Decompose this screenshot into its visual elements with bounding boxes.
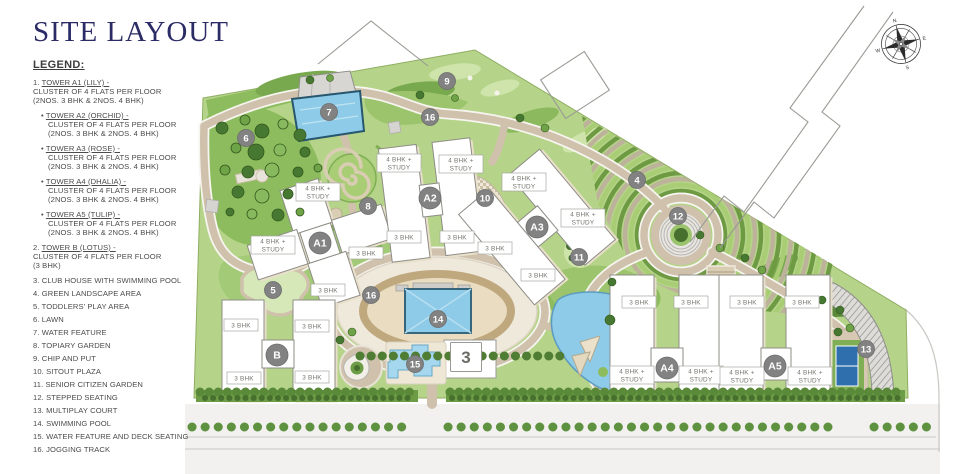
- legend-item: • TOWER A4 (DHALIA) -CLUSTER OF 4 FLATS …: [33, 177, 189, 204]
- legend-item: 14. SWIMMING POOL: [33, 419, 189, 428]
- legend-item: 15. WATER FEATURE AND DECK SEATING: [33, 432, 189, 441]
- map-marker-7: 7: [321, 104, 338, 121]
- unit-label: 3 BHK: [349, 247, 383, 259]
- svg-text:N: N: [892, 18, 897, 25]
- map-marker-12: 12: [670, 208, 687, 225]
- map-marker-16: 16: [422, 109, 439, 126]
- unit-label: 4 BHK +STUDY: [788, 367, 832, 385]
- compass-rose-icon: NESW: [869, 12, 934, 78]
- svg-text:A5: A5: [768, 360, 782, 372]
- svg-text:E: E: [922, 35, 927, 42]
- svg-text:5: 5: [270, 285, 276, 296]
- svg-text:4 BHK +: 4 BHK +: [260, 239, 285, 246]
- svg-text:STUDY: STUDY: [450, 166, 473, 173]
- map-marker-3: 3: [451, 343, 482, 372]
- map-marker-9: 9: [439, 73, 456, 90]
- svg-text:3 BHK: 3 BHK: [302, 323, 322, 330]
- map-marker-6: 6: [238, 130, 255, 147]
- unit-label: 3 BHK: [478, 242, 512, 254]
- svg-text:3: 3: [461, 348, 470, 367]
- svg-text:4: 4: [634, 175, 640, 186]
- svg-text:STUDY: STUDY: [262, 247, 285, 254]
- unit-label: 4 BHK +STUDY: [610, 366, 654, 384]
- map-marker-15: 15: [407, 356, 424, 373]
- svg-text:A4: A4: [660, 362, 674, 374]
- svg-text:3 BHK: 3 BHK: [318, 287, 338, 294]
- legend-list: 1. TOWER A1 (LILY) -CLUSTER OF 4 FLATS P…: [33, 78, 189, 454]
- svg-text:W: W: [875, 48, 881, 55]
- svg-text:16: 16: [425, 112, 436, 123]
- legend-item: 11. SENIOR CITIZEN GARDEN: [33, 380, 189, 389]
- svg-text:4 BHK +: 4 BHK +: [797, 370, 822, 377]
- legend-item: 7. WATER FEATURE: [33, 328, 189, 337]
- svg-text:3 BHK: 3 BHK: [528, 272, 548, 279]
- unit-label: 3 BHK: [521, 269, 555, 281]
- unit-label: 4 BHK +STUDY: [679, 366, 723, 384]
- unit-label: 3 BHK: [311, 284, 345, 296]
- legend-item: • TOWER A3 (ROSE) -CLUSTER OF 4 FLATS PE…: [33, 144, 189, 171]
- legend-item: 16. JOGGING TRACK: [33, 445, 189, 454]
- legend-item: 12. STEPPED SEATING: [33, 393, 189, 402]
- unit-label: 4 BHK +STUDY: [720, 367, 764, 385]
- svg-text:4 BHK +: 4 BHK +: [511, 176, 536, 183]
- svg-text:4 BHK +: 4 BHK +: [386, 157, 411, 164]
- svg-text:4 BHK +: 4 BHK +: [688, 369, 713, 376]
- unit-label: 3 BHK: [622, 296, 656, 308]
- svg-text:11: 11: [574, 252, 585, 263]
- unit-label: 3 BHK: [440, 231, 474, 243]
- unit-label: 3 BHK: [295, 371, 329, 383]
- map-marker-14: 14: [430, 311, 447, 328]
- svg-text:4 BHK +: 4 BHK +: [570, 212, 595, 219]
- svg-text:STUDY: STUDY: [307, 194, 330, 201]
- svg-text:14: 14: [433, 314, 444, 325]
- svg-text:3 BHK: 3 BHK: [792, 299, 812, 306]
- svg-text:A3: A3: [530, 221, 544, 233]
- svg-text:3 BHK: 3 BHK: [394, 234, 414, 241]
- svg-text:STUDY: STUDY: [731, 378, 754, 385]
- svg-text:STUDY: STUDY: [388, 165, 411, 172]
- svg-text:S: S: [905, 65, 910, 72]
- svg-text:3 BHK: 3 BHK: [737, 299, 757, 306]
- unit-label: 4 BHK +STUDY: [377, 154, 421, 172]
- svg-text:6: 6: [243, 133, 248, 144]
- svg-text:3 BHK: 3 BHK: [234, 375, 254, 382]
- unit-label: 3 BHK: [387, 231, 421, 243]
- legend-item: 13. MULTIPLAY COURT: [33, 406, 189, 415]
- unit-label: 3 BHK: [674, 296, 708, 308]
- map-marker-A5: A5: [764, 355, 786, 377]
- map-marker-10: 10: [477, 190, 494, 207]
- map-marker-13: 13: [858, 341, 875, 358]
- svg-text:STUDY: STUDY: [621, 377, 644, 384]
- svg-text:STUDY: STUDY: [513, 184, 536, 191]
- svg-text:3 BHK: 3 BHK: [485, 245, 505, 252]
- map-marker-A2: A2: [419, 187, 441, 209]
- legend-item: • TOWER A5 (TULIP) -CLUSTER OF 4 FLATS P…: [33, 210, 189, 237]
- legend-item: • TOWER A2 (ORCHID) -CLUSTER OF 4 FLATS …: [33, 111, 189, 138]
- svg-text:STUDY: STUDY: [799, 378, 822, 385]
- site-layout-page: NESW 4 BHK +STUDY4 BHK +STUDY4 BHK +STUD…: [0, 0, 967, 474]
- legend-item: 5. TODDLERS' PLAY AREA: [33, 302, 189, 311]
- svg-text:7: 7: [326, 107, 331, 118]
- svg-text:3 BHK: 3 BHK: [681, 299, 701, 306]
- legend-item: 10. SITOUT PLAZA: [33, 367, 189, 376]
- legend-heading: LEGEND:: [33, 59, 189, 71]
- unit-label: 4 BHK +STUDY: [502, 173, 546, 191]
- page-title: SITE LAYOUT: [33, 16, 189, 49]
- svg-text:3 BHK: 3 BHK: [356, 250, 376, 257]
- svg-text:4 BHK +: 4 BHK +: [729, 370, 754, 377]
- svg-text:4 BHK +: 4 BHK +: [305, 186, 330, 193]
- svg-text:15: 15: [410, 359, 421, 370]
- unit-label: 4 BHK +STUDY: [439, 155, 483, 173]
- unit-label: 3 BHK: [785, 296, 819, 308]
- map-marker-8: 8: [360, 198, 377, 215]
- unit-label: 3 BHK: [295, 320, 329, 332]
- unit-label: 4 BHK +STUDY: [561, 209, 605, 227]
- svg-text:4 BHK +: 4 BHK +: [448, 158, 473, 165]
- svg-text:3 BHK: 3 BHK: [447, 234, 467, 241]
- legend-item: 9. CHIP AND PUT: [33, 354, 189, 363]
- legend-item: 8. TOPIARY GARDEN: [33, 341, 189, 350]
- map-marker-4: 4: [629, 172, 646, 189]
- map-marker-11: 11: [571, 249, 588, 266]
- svg-text:3 BHK: 3 BHK: [231, 322, 251, 329]
- svg-text:B: B: [273, 349, 281, 361]
- legend-item: 4. GREEN LANDSCAPE AREA: [33, 289, 189, 298]
- svg-text:16: 16: [366, 290, 377, 301]
- unit-label: 3 BHK: [224, 319, 258, 331]
- legend-item: 3. CLUB HOUSE WITH SWIMMING POOL: [33, 276, 189, 285]
- map-marker-A1: A1: [309, 232, 331, 254]
- map-marker-16: 16: [363, 287, 380, 304]
- svg-text:A1: A1: [313, 237, 327, 249]
- legend-panel: SITE LAYOUT LEGEND: 1. TOWER A1 (LILY) -…: [33, 16, 189, 458]
- legend-item: 6. LAWN: [33, 315, 189, 324]
- unit-label: 4 BHK +STUDY: [296, 183, 340, 201]
- legend-item: 1. TOWER A1 (LILY) -CLUSTER OF 4 FLATS P…: [33, 78, 189, 105]
- map-marker-5: 5: [265, 282, 282, 299]
- svg-text:3 BHK: 3 BHK: [629, 299, 649, 306]
- unit-label: 4 BHK +STUDY: [251, 236, 295, 254]
- unit-label: 3 BHK: [227, 372, 261, 384]
- svg-text:12: 12: [673, 211, 684, 222]
- svg-text:STUDY: STUDY: [690, 377, 713, 384]
- svg-text:13: 13: [861, 344, 872, 355]
- unit-label: 3 BHK: [730, 296, 764, 308]
- svg-text:8: 8: [365, 201, 370, 212]
- svg-text:9: 9: [444, 76, 449, 87]
- svg-text:A2: A2: [423, 192, 437, 204]
- svg-text:10: 10: [480, 193, 491, 204]
- svg-text:3 BHK: 3 BHK: [302, 374, 322, 381]
- map-marker-A4: A4: [656, 357, 678, 379]
- svg-text:STUDY: STUDY: [572, 220, 595, 227]
- map-marker-A3: A3: [526, 216, 548, 238]
- legend-item: 2. TOWER B (LOTUS) -CLUSTER OF 4 FLATS P…: [33, 243, 189, 270]
- map-marker-B: B: [266, 344, 288, 366]
- svg-text:4 BHK +: 4 BHK +: [619, 369, 644, 376]
